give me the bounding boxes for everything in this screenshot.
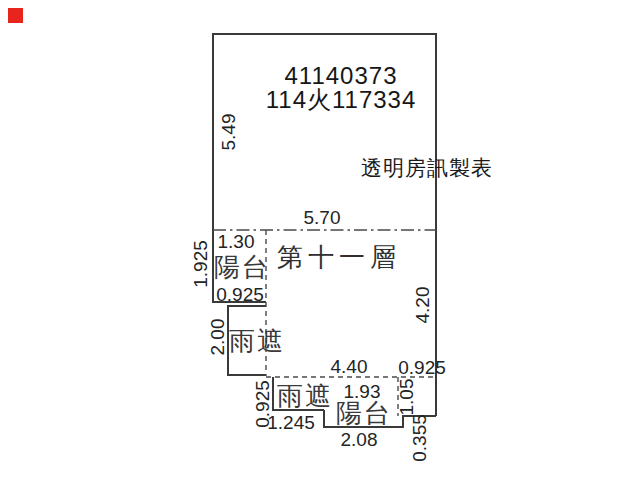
- room-balcony-top: 陽台: [214, 254, 270, 280]
- dim-left-height: 5.49: [219, 114, 238, 151]
- dim-balcony-top-width: 1.30: [218, 232, 255, 251]
- floor-label: 第十一層: [277, 244, 401, 270]
- dim-top-width: 5.70: [304, 208, 341, 227]
- room-canopy-left: 雨遮: [229, 328, 285, 354]
- dim-balcony-top-height: 1.925: [191, 240, 210, 288]
- dim-bottom-right-width: 0.925: [398, 358, 446, 377]
- dim-canopy-bottom-width: 1.245: [267, 413, 315, 432]
- dim-canopy-left-height: 2.00: [208, 319, 227, 356]
- dim-balcony-bottom-right: 1.05: [397, 379, 416, 416]
- doc-number-line2: 114火117334: [266, 88, 417, 112]
- floor-plan-page: 41140373 114火117334 透明房訊製表 5.49 5.70 1.3…: [0, 0, 640, 477]
- dim-balcony-top-bottom: 0.925: [216, 285, 264, 304]
- doc-number-line1: 41140373: [285, 64, 398, 88]
- dim-bottom-width: 4.40: [331, 357, 368, 376]
- dim-bottom-step-height: 0.355: [410, 414, 429, 462]
- dim-right-height: 4.20: [413, 287, 432, 324]
- dim-balcony-bottom-width: 2.08: [341, 430, 378, 449]
- room-canopy-bottom: 雨遮: [277, 383, 333, 409]
- maker-credit-text: 透明房訊製表: [361, 157, 493, 178]
- room-balcony-bottom: 陽台: [336, 400, 392, 426]
